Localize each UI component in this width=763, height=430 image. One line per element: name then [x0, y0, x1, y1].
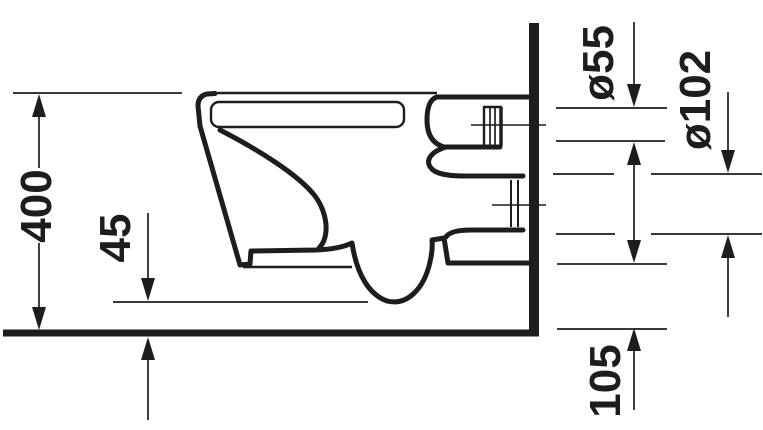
arrowhead-down	[627, 84, 641, 107]
dimension-105: 105	[557, 165, 667, 418]
toilet-profile	[198, 93, 546, 302]
flush-pipe-flange	[484, 107, 502, 146]
dimension-label-overall-height: 400	[12, 169, 61, 242]
technical-drawing-canvas: 400 45 ø55	[0, 0, 763, 430]
dimension-label-outlet-height: 105	[581, 344, 630, 417]
seat-profile	[211, 102, 404, 127]
dimension-label-underside-clearance: 45	[91, 214, 140, 263]
arrowhead-down	[627, 240, 641, 263]
dimension-45: 45	[91, 213, 368, 420]
arrowhead-up	[627, 142, 641, 165]
arrowhead-up	[141, 337, 155, 360]
arrowhead-up	[721, 235, 735, 258]
dimension-label-flush-diameter: ø55	[574, 25, 623, 101]
outlet-pipe	[429, 147, 523, 237]
flush-housing-outline	[427, 97, 500, 147]
outlet-bottom	[446, 230, 523, 237]
dimension-label-outlet-diameter: ø102	[671, 50, 720, 150]
arrowhead-down	[141, 278, 155, 301]
dimension-400: 400	[12, 93, 182, 330]
outlet-top	[429, 147, 523, 176]
bowl-inner-curve	[220, 130, 326, 248]
arrowhead-down	[32, 307, 46, 330]
dimension-55: ø55	[556, 22, 667, 165]
technical-drawing: 400 45 ø55	[0, 0, 763, 430]
arrowhead-up	[32, 94, 46, 117]
arrowhead-down	[721, 150, 735, 173]
